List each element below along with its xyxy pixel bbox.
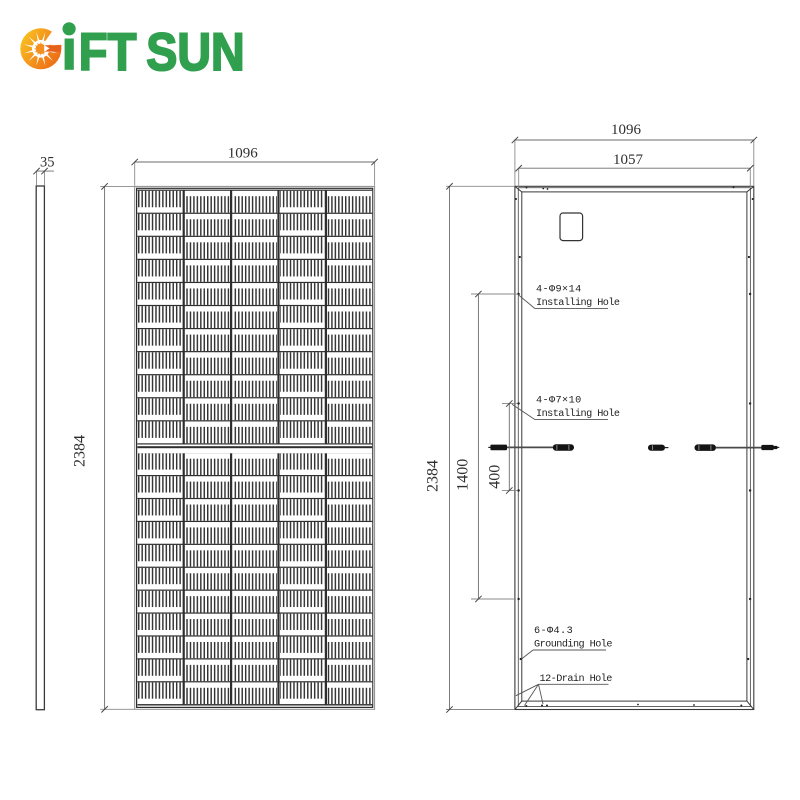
svg-text:1096: 1096	[228, 146, 259, 162]
svg-text:4-Φ9×14: 4-Φ9×14	[536, 285, 582, 296]
svg-text:6-Φ4.3: 6-Φ4.3	[534, 626, 573, 637]
svg-text:SUN: SUN	[146, 22, 244, 81]
svg-text:4-Φ7×10: 4-Φ7×10	[536, 396, 582, 407]
svg-text:Installing Hole: Installing Hole	[536, 408, 620, 420]
svg-text:400: 400	[486, 465, 503, 489]
svg-text:Installing Hole: Installing Hole	[536, 297, 620, 309]
svg-text:1400: 1400	[454, 459, 471, 491]
svg-text:2384: 2384	[425, 460, 442, 492]
svg-text:1096: 1096	[611, 122, 642, 138]
svg-text:FT: FT	[79, 22, 137, 81]
svg-text:12-Drain Hole: 12-Drain Hole	[540, 673, 613, 685]
svg-text:Grounding Hole: Grounding Hole	[534, 639, 612, 651]
svg-text:2384: 2384	[72, 435, 89, 467]
svg-text:35: 35	[40, 154, 55, 170]
svg-text:1057: 1057	[613, 152, 644, 168]
